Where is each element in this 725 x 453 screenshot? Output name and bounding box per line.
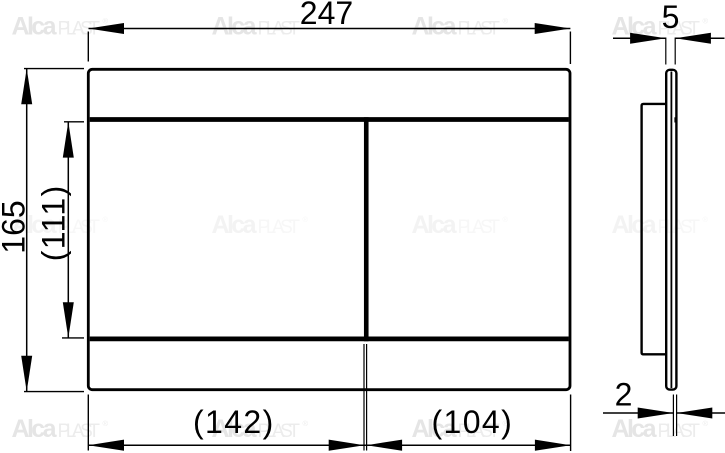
svg-text:(142): (142) [193, 404, 275, 440]
svg-text:(104): (104) [431, 404, 513, 440]
svg-text:(111): (111) [36, 184, 72, 261]
svg-text:5: 5 [662, 0, 680, 35]
svg-text:2: 2 [615, 377, 633, 413]
svg-text:247: 247 [300, 0, 353, 31]
svg-text:165: 165 [0, 200, 32, 253]
